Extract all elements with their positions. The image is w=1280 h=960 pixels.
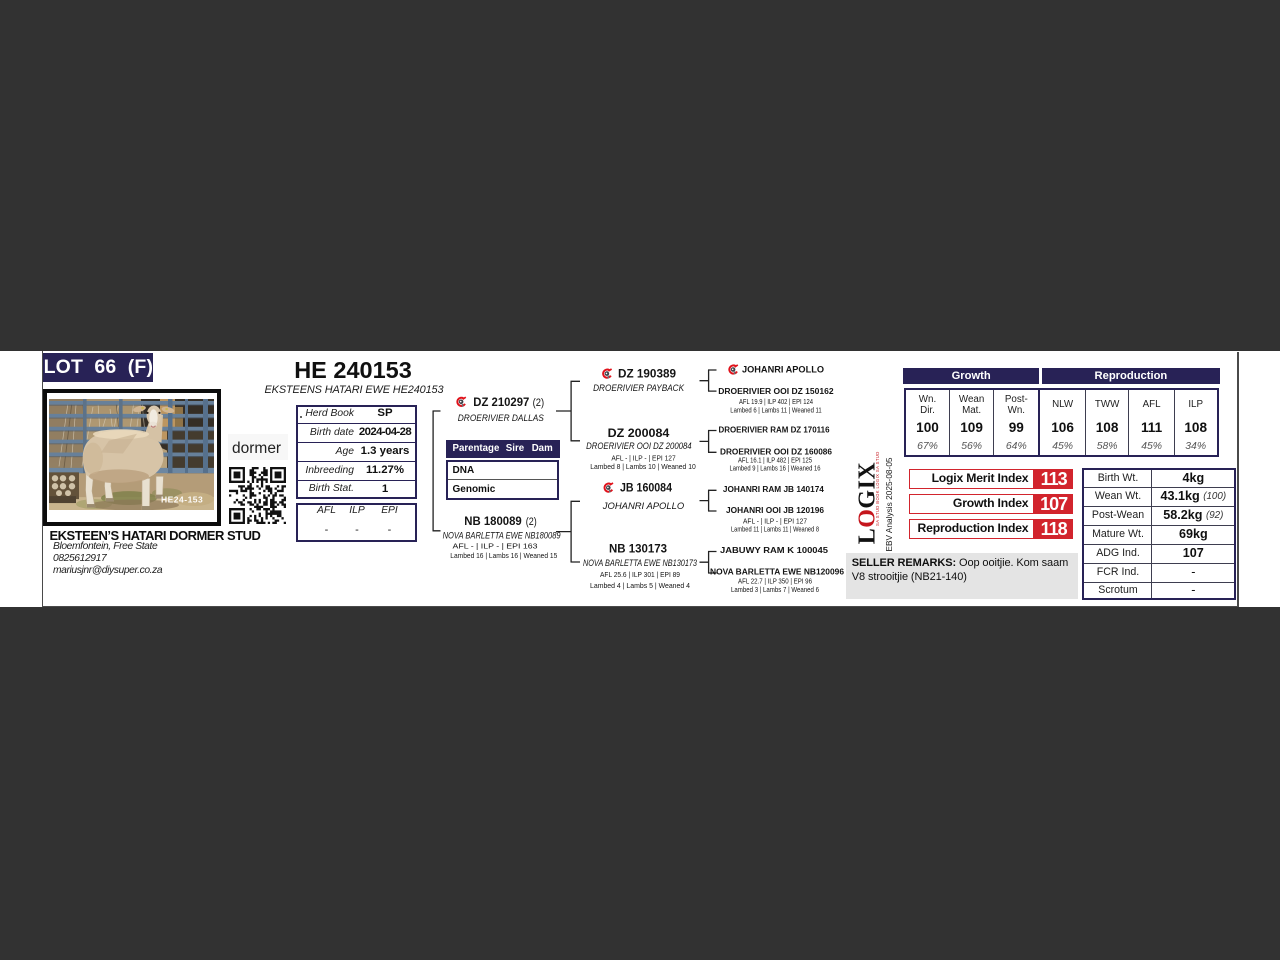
svg-text:NOVA BARLETTA EWE NB180089: NOVA BARLETTA EWE NB180089 <box>443 530 562 541</box>
svg-text:DROERIVIER OOI DZ 200084: DROERIVIER OOI DZ 200084 <box>586 441 692 451</box>
svg-text:Lambed 11 | Lambs 11 | Weaned: Lambed 11 | Lambs 11 | Weaned 8 <box>731 525 819 534</box>
svg-text:DZ 190389: DZ 190389 <box>618 367 676 381</box>
svg-text:DZ 210297: DZ 210297 <box>473 395 529 409</box>
svg-text:NB 130173: NB 130173 <box>609 541 667 555</box>
svg-text:Lambed 8 | Lambs 10 | Weaned 1: Lambed 8 | Lambs 10 | Weaned 10 <box>590 462 696 471</box>
svg-text:DROERIVIER OOI DZ 150162: DROERIVIER OOI DZ 150162 <box>718 386 834 396</box>
svg-text:JB 160084: JB 160084 <box>620 481 672 495</box>
svg-text:Lambed 9 | Lambs 16 | Weaned 1: Lambed 9 | Lambs 16 | Weaned 16 <box>730 463 821 472</box>
svg-text:Lambed 4 | Lambs 5 | Weaned 4: Lambed 4 | Lambs 5 | Weaned 4 <box>590 581 690 590</box>
svg-text:AFL - | ILP - | EPI 163: AFL - | ILP - | EPI 163 <box>453 541 538 550</box>
svg-text:Lambed 3 | Lambs 7 | Weaned 6: Lambed 3 | Lambs 7 | Weaned 6 <box>731 585 819 594</box>
svg-text:HE24-153: HE24-153 <box>161 495 203 505</box>
svg-text:DZ 200084: DZ 200084 <box>608 426 670 440</box>
svg-text:NOVA BARLETTA EWE NB120096: NOVA BARLETTA EWE NB120096 <box>710 566 844 576</box>
svg-text:AFL 25.6 | ILP 301 | EPI 89: AFL 25.6 | ILP 301 | EPI 89 <box>600 570 680 579</box>
svg-text:Lambed 16 | Lambs 16 | Weaned: Lambed 16 | Lambs 16 | Weaned 15 <box>450 551 557 560</box>
svg-text:DROERIVIER PAYBACK: DROERIVIER PAYBACK <box>593 383 685 394</box>
svg-text:DROERIVIER RAM DZ 170116: DROERIVIER RAM DZ 170116 <box>719 424 830 434</box>
svg-text:JOHANRI RAM JB 140174: JOHANRI RAM JB 140174 <box>723 484 824 494</box>
svg-text:NOVA BARLETTA EWE NB130173: NOVA BARLETTA EWE NB130173 <box>583 558 697 568</box>
svg-text:JABUWY RAM K 100045: JABUWY RAM K 100045 <box>720 545 828 555</box>
svg-text:JOHANRI APOLLO: JOHANRI APOLLO <box>742 364 824 374</box>
svg-text:(2): (2) <box>526 516 537 528</box>
svg-text:Lambed 6 | Lambs 11 | Weaned 1: Lambed 6 | Lambs 11 | Weaned 11 <box>730 406 821 415</box>
svg-text:NB 180089: NB 180089 <box>464 514 522 528</box>
svg-text:JOHANRI OOI JB 120196: JOHANRI OOI JB 120196 <box>726 505 824 515</box>
svg-text:DROERIVIER DALLAS: DROERIVIER DALLAS <box>458 413 545 424</box>
svg-text:JOHANRI APOLLO: JOHANRI APOLLO <box>602 501 685 512</box>
svg-text:(2): (2) <box>533 397 545 409</box>
